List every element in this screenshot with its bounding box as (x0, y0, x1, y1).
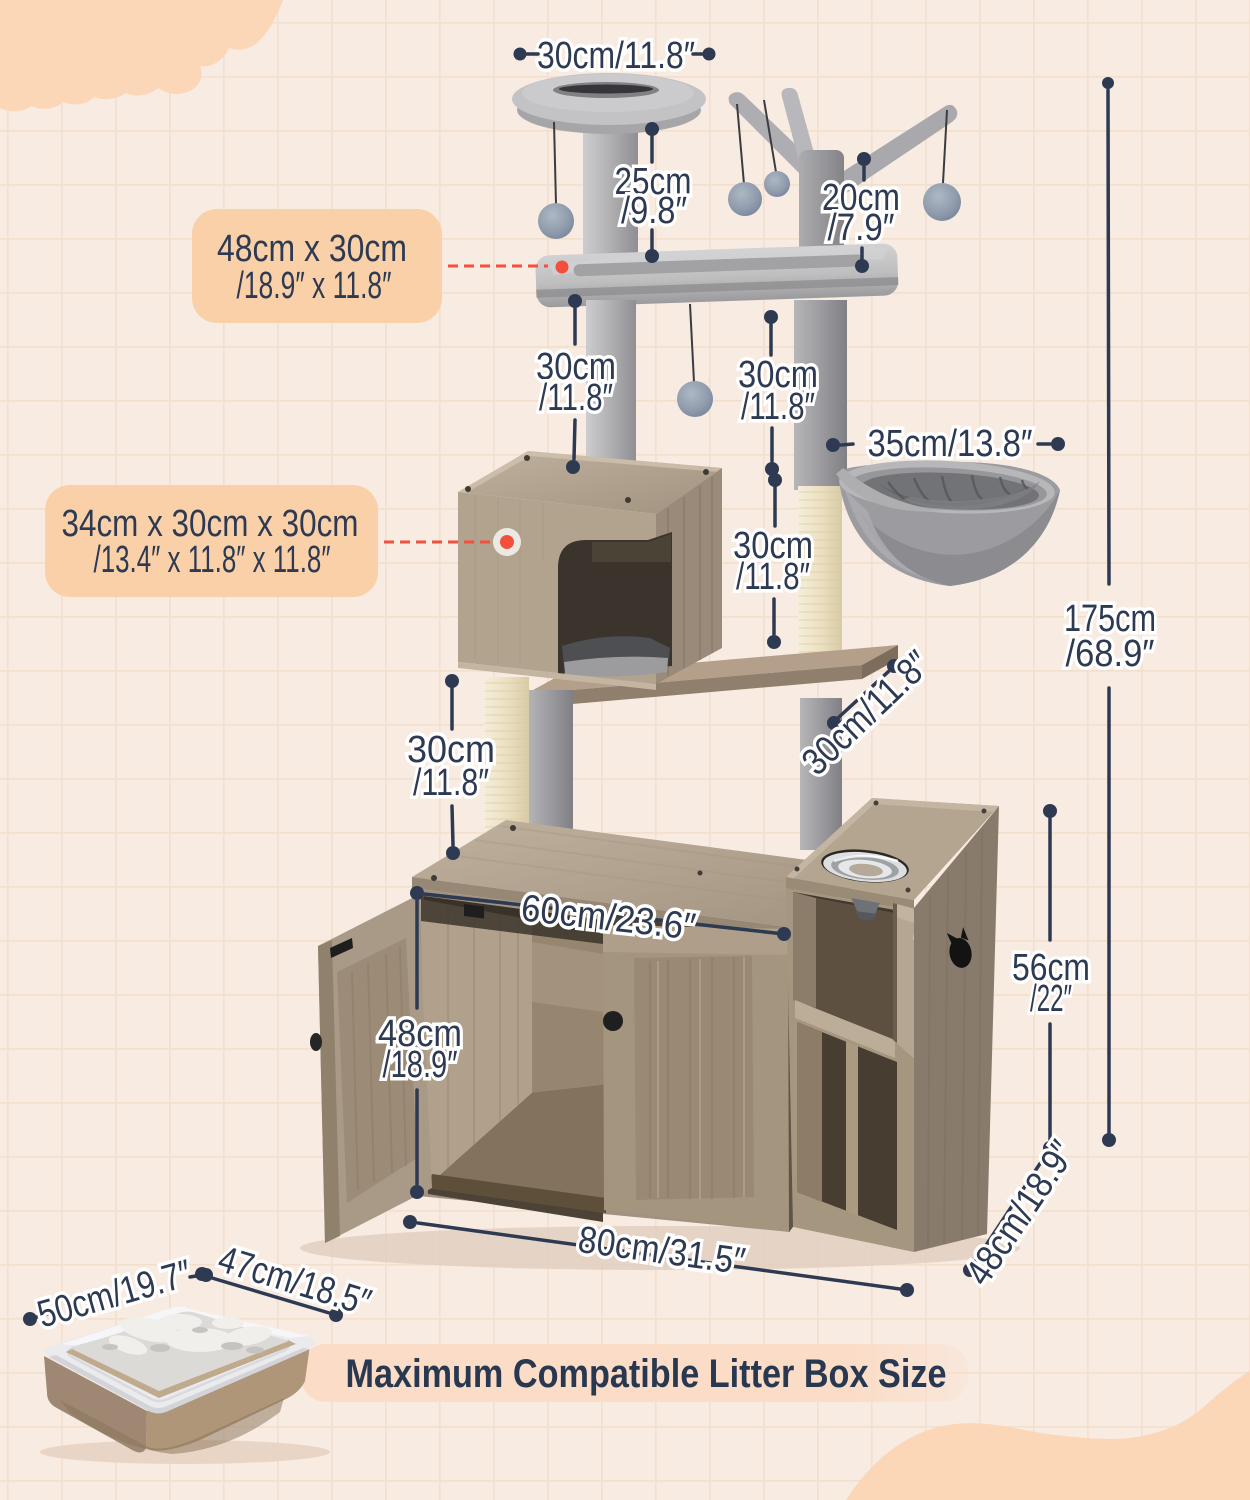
svg-text:Maximum Compatible Litter Box: Maximum Compatible Litter Box Size (346, 1352, 947, 1396)
svg-text:/18.9″: /18.9″ (383, 1044, 458, 1086)
svg-text:/9.8″: /9.8″ (621, 190, 687, 232)
svg-text:/18.9″ x 11.8″: /18.9″ x 11.8″ (237, 265, 392, 307)
svg-text:35cm/13.8″: 35cm/13.8″ (868, 423, 1033, 465)
svg-text:/68.9″: /68.9″ (1066, 633, 1155, 675)
svg-text:/13.4″ x 11.8″ x 11.8″: /13.4″ x 11.8″ x 11.8″ (94, 539, 331, 581)
svg-text:/11.8″: /11.8″ (741, 386, 815, 428)
svg-text:/22″: /22″ (1030, 978, 1072, 1020)
svg-text:/7.9″: /7.9″ (828, 207, 895, 249)
svg-text:/11.8″: /11.8″ (736, 556, 810, 598)
svg-text:30cm/11.8″: 30cm/11.8″ (537, 35, 695, 77)
svg-text:48cm x 30cm: 48cm x 30cm (217, 228, 407, 270)
svg-text:/11.8″: /11.8″ (413, 762, 489, 804)
svg-text:/11.8″: /11.8″ (539, 377, 613, 419)
